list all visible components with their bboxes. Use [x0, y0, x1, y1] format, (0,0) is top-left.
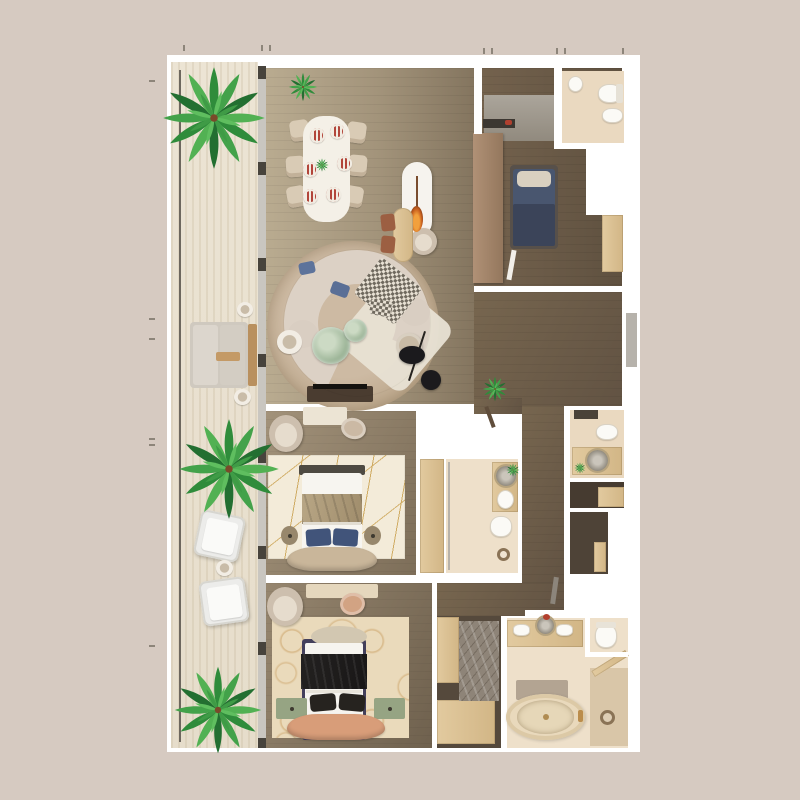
bedroom3-desk [306, 584, 378, 598]
tick-top-1 [183, 45, 185, 51]
tick-top-7 [564, 48, 566, 54]
wall-bathroom1-bottom [554, 143, 624, 149]
place-setting-2 [330, 124, 345, 139]
bed2-pillow-1 [305, 528, 331, 547]
bath1-sink [568, 76, 583, 92]
powder-mirror [587, 450, 608, 471]
bath2-basin [497, 490, 514, 509]
tick-left-5 [149, 444, 155, 446]
bed3-bench-salmon [287, 714, 385, 740]
bed2-blanket [302, 494, 362, 524]
powder-cistern [574, 410, 598, 419]
walkin-wardrobe [437, 617, 459, 683]
table-centerpiece [315, 158, 329, 172]
master-bath-top-wall [525, 610, 628, 618]
bedroom3-armchair [267, 587, 303, 626]
floor-plan-render: 3D rendered apartment floor plan, top-do… [0, 0, 800, 800]
fireside-chair [410, 228, 437, 255]
daybed-cushion-left [193, 325, 218, 385]
bedroom2-desk [303, 407, 347, 425]
arc-lamp-shade [399, 346, 425, 364]
tick-left-3 [149, 338, 155, 340]
bathtub [506, 694, 585, 740]
tick-top-3 [269, 45, 271, 51]
bath2-toilet [490, 516, 512, 537]
side-table-ring [277, 330, 302, 354]
powder-toilet [596, 424, 618, 440]
tick-top-6 [556, 48, 558, 54]
place-setting-5 [303, 189, 318, 204]
tick-left-6 [149, 645, 155, 647]
terrace-side-table-1 [237, 302, 253, 317]
place-setting-4 [337, 156, 352, 171]
master-toilet-tank [596, 622, 616, 628]
tick-top-4 [483, 48, 485, 54]
walkin-wood-floor [437, 700, 495, 744]
bath1-toilet-tank [616, 84, 623, 103]
walkin-rug [459, 621, 499, 701]
page-title: 3D rendered apartment floor plan, top-do… [0, 0, 1, 1]
entry-door [626, 313, 637, 367]
single-bed-pillow [517, 171, 551, 187]
master-sink-right [556, 624, 573, 636]
bath2-shower-glass [448, 462, 450, 570]
palm-tree-middle [176, 416, 282, 522]
leather-stool-1 [380, 213, 396, 231]
bed2-lamp-left [281, 526, 298, 545]
powder-plant [574, 462, 586, 474]
hall-plant [482, 376, 508, 402]
daybed-wood-rail [248, 324, 257, 386]
tick-top-2 [261, 45, 263, 51]
coffee-table-marble-small [344, 319, 367, 342]
hall-floor [522, 406, 564, 583]
wardrobe-maid [602, 215, 623, 272]
tick-left-1 [149, 80, 155, 82]
bed2-bench [287, 547, 377, 571]
tall-cabinet [473, 133, 503, 283]
bed3-pillow-1 [309, 693, 336, 712]
master-wc-wall-v [585, 618, 590, 654]
bed3-black-throw [301, 654, 367, 689]
palm-tree-top [160, 64, 268, 172]
tick-top-8 [622, 48, 624, 54]
bath2-shower-drain [497, 548, 510, 561]
master-shower-floor [590, 668, 628, 746]
bed2-sheet-fold [303, 522, 361, 525]
facade-notch-upper [586, 143, 640, 215]
bed3-sheet-fold [306, 690, 362, 693]
tv-screen [313, 384, 367, 389]
nook-desk-accent [505, 120, 512, 125]
tick-top-5 [491, 48, 493, 54]
master-sink-left [513, 624, 530, 636]
facade-notch-lower [608, 512, 640, 576]
nightstand-sage-right [374, 698, 405, 719]
bath2-plant [506, 463, 520, 477]
palm-tree-bottom [170, 664, 266, 756]
daybed-wood-tray [216, 352, 240, 361]
master-vanity-flowers [543, 614, 550, 620]
tick-left-4 [149, 438, 155, 440]
arc-lamp-base [421, 370, 441, 390]
bath1-bidet [602, 108, 623, 123]
wall-living-maid [474, 66, 482, 134]
leather-stool-2 [380, 235, 395, 253]
tub-faucet [578, 710, 583, 722]
master-wc-wall-h [585, 652, 628, 657]
bed2-pillow-2 [332, 528, 358, 547]
single-bed-duvet [513, 204, 555, 246]
terrace-side-table-2 [234, 389, 251, 405]
closet1-drawers [598, 487, 624, 507]
master-shower-drain [600, 710, 615, 725]
tick-left-2 [149, 318, 155, 320]
fireplace-bench [393, 208, 413, 262]
terrace-lounge-chair-2 [198, 576, 250, 627]
terrace-side-table-3 [216, 560, 233, 576]
place-setting-6 [326, 187, 341, 202]
living-plant [288, 72, 318, 102]
bed3-pillow-2 [338, 693, 365, 712]
closet2-shelf [594, 542, 606, 572]
place-setting-1 [310, 128, 325, 143]
bath2-wardrobe [420, 459, 444, 573]
bed2-lamp-right [364, 526, 381, 545]
wall-bathroom1-left [554, 68, 562, 146]
